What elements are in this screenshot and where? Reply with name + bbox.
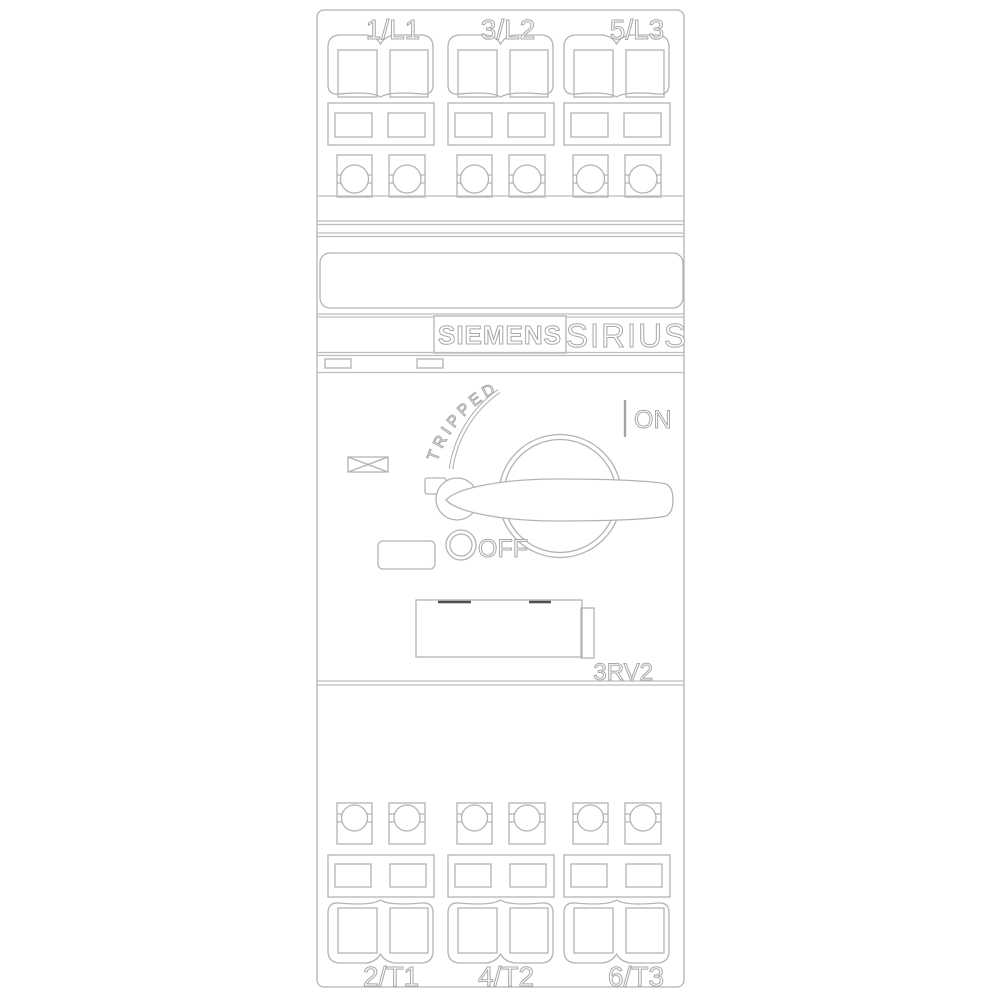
- off-label: OFF: [478, 535, 528, 563]
- line-terminal-1L1: [328, 35, 434, 197]
- line-terminal-5L3: [564, 35, 670, 197]
- label-recess: [320, 253, 683, 308]
- model-label: 3RV2: [593, 659, 653, 686]
- circuit-breaker-drawing: 1/L1 3/L2 5/L3 SIEMENS SIRIUS TRIPPED ON…: [0, 0, 1000, 1000]
- load-terminal-4T2: [448, 803, 554, 963]
- reset-button: [378, 541, 435, 569]
- load-terminal-6T3: [564, 803, 670, 963]
- housing-slot: [325, 359, 351, 368]
- product-illustration: 1/L1 3/L2 5/L3 SIEMENS SIRIUS TRIPPED ON…: [0, 0, 1000, 1000]
- terminal-label-2T1: 2/T1: [363, 961, 419, 992]
- series-logo-text: SIRIUS: [566, 317, 688, 354]
- test-bowtie-mark: [348, 457, 388, 472]
- brand-logo-text: SIEMENS: [438, 320, 562, 350]
- terminal-label-4T2: 4/T2: [478, 961, 534, 992]
- on-label: ON: [634, 406, 672, 434]
- current-setting-window: [416, 600, 594, 658]
- rotary-handle: [446, 479, 673, 521]
- housing-slot: [417, 359, 443, 368]
- load-terminal-2T1: [328, 803, 434, 963]
- tripped-label: TRIPPED: [425, 379, 502, 463]
- terminal-label-1L1: 1/L1: [366, 14, 421, 45]
- terminal-label-6T3: 6/T3: [608, 961, 664, 992]
- terminal-label-5L3: 5/L3: [610, 14, 665, 45]
- terminal-label-3L2: 3/L2: [481, 14, 536, 45]
- line-terminal-3L2: [448, 35, 554, 197]
